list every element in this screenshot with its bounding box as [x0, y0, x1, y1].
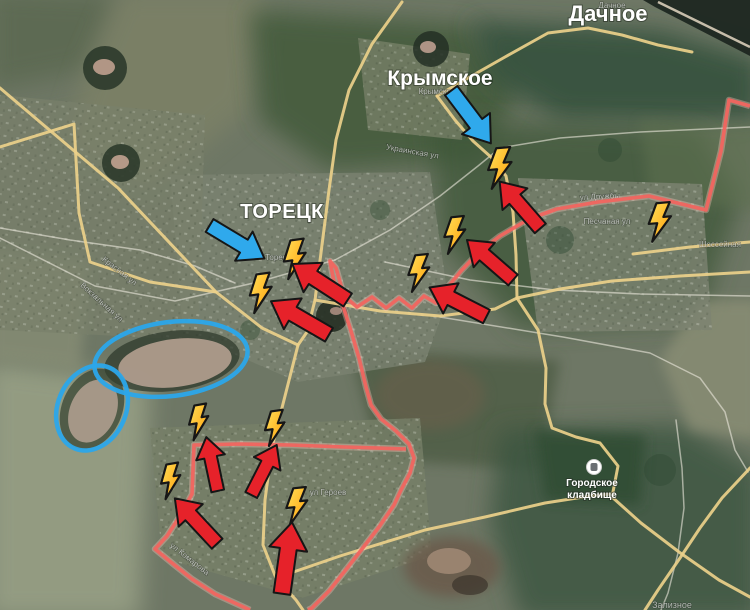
street-label: ул Героев [310, 488, 347, 497]
label-toretsk: ТОРЕЦК [240, 201, 324, 223]
street-label: Песчаная ул [584, 217, 631, 226]
label-dachnoe: Дачное [568, 1, 647, 26]
street-label: Зализное [652, 600, 692, 610]
annotated-war-map: ДачноеКрымскоеТорецкул ДружбыПесчаная ул… [0, 0, 750, 610]
cemetery-marker-icon [587, 460, 602, 475]
map-canvas: ДачноеКрымскоеТорецкул ДружбыПесчаная ул… [0, 0, 750, 610]
label-krymskoe: Крымское [387, 67, 492, 90]
label-cemetery-line1: Городское [566, 478, 618, 489]
label-cemetery-line2: кладбище [567, 489, 617, 501]
street-label: Шоссейная [699, 240, 741, 249]
